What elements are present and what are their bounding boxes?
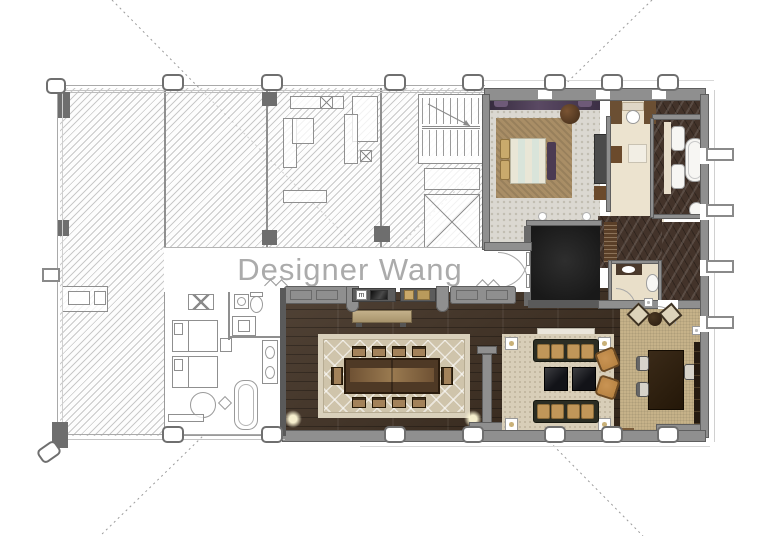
cad-closet-inner (94, 291, 106, 305)
facade-tab (706, 260, 734, 273)
left-wall-line (57, 86, 58, 438)
sofa-cushion (551, 404, 564, 419)
sofa-cushion (581, 404, 594, 419)
door-leaf (526, 252, 530, 266)
dining-chair (352, 346, 366, 357)
column-marker (46, 78, 66, 94)
bench (168, 414, 204, 422)
column-fill (262, 230, 277, 245)
round-side-table (626, 110, 640, 124)
dining-chair (352, 397, 366, 408)
sofa-cushion (537, 404, 550, 419)
shower-drain (238, 320, 250, 332)
facade-tab (706, 204, 734, 217)
kitchen-counter-right (344, 114, 358, 164)
toilet (250, 296, 263, 313)
column-marker (601, 74, 623, 91)
cad-bedroom-right-wall (280, 288, 286, 436)
bath-wall (228, 288, 230, 340)
cad-wall (266, 88, 268, 250)
appliance-icon (320, 96, 333, 109)
alcove-panel (610, 98, 622, 124)
dining-chair (372, 346, 386, 357)
vanity-counter (664, 122, 671, 194)
dining-chair (372, 397, 386, 408)
table-center-line (391, 360, 393, 392)
column-marker (657, 426, 679, 443)
coffee-table (572, 367, 596, 391)
minibar-icon: m (356, 290, 367, 300)
column-marker (544, 426, 566, 443)
column-fill (262, 92, 277, 106)
tv-cabinet (188, 294, 214, 310)
corridor-top-wall-line (164, 247, 530, 248)
pillar-stem (482, 354, 492, 426)
bath-wall (652, 114, 706, 120)
cad-wall (164, 88, 166, 250)
dressing-ottoman (628, 144, 647, 163)
glass-shelf-icon (370, 290, 388, 300)
dressing-bench (610, 146, 622, 163)
unrendered-zone-bottom-left (60, 250, 164, 436)
sideboard-leg (356, 323, 362, 327)
cad-closet-inner (68, 291, 90, 305)
sink-bowl (237, 297, 246, 306)
left-wall-line (62, 86, 63, 436)
wall-sconce-glow (284, 410, 302, 428)
facade-tab (42, 268, 60, 282)
sofa-cushion (551, 344, 564, 359)
column-fill (57, 92, 70, 118)
dining-chair (412, 346, 426, 357)
appliance-icon (360, 150, 372, 162)
column-marker (601, 426, 623, 443)
outer-boundary-line (360, 446, 710, 447)
column-marker (384, 426, 406, 443)
foyer-top-wall (526, 220, 602, 226)
bed-fold-line (188, 357, 189, 387)
cabinet-panel (456, 290, 478, 300)
vanity-basin (265, 346, 275, 359)
closet-hanging-rod (604, 222, 617, 262)
powder-wall (608, 260, 662, 264)
column-fill (374, 226, 390, 242)
corner-side-table (505, 337, 518, 350)
bed-pillow-left (500, 139, 510, 159)
desk-chair (636, 356, 649, 371)
window-slot (596, 90, 610, 99)
column-fill (57, 220, 69, 236)
dressing-divider-wall (606, 116, 611, 212)
bath-wall (650, 118, 654, 218)
cabinet-panel (316, 290, 338, 300)
desk (648, 350, 684, 410)
column-marker (261, 74, 283, 91)
bed-pillow (174, 323, 183, 335)
cabinet-panel (290, 290, 312, 300)
bath-wall (228, 336, 282, 338)
powder-basin (622, 266, 635, 273)
vanity-basin (265, 366, 275, 379)
column-marker (162, 426, 184, 443)
desk-chair (636, 382, 649, 397)
sofa-cushion (537, 344, 550, 359)
facade-tab (706, 316, 734, 329)
column-marker (384, 74, 406, 91)
column-marker (462, 74, 484, 91)
foyer-floor (530, 224, 600, 306)
column-marker (544, 74, 566, 91)
sofa-cushion (567, 344, 580, 359)
nightstand (220, 338, 232, 352)
bedroom-left-wall (482, 94, 490, 250)
bath-sink (671, 164, 685, 189)
dining-end-chair (441, 367, 453, 385)
bottom-wall-rendered (282, 430, 706, 442)
dining-chair (412, 397, 426, 408)
downlight-square (644, 298, 653, 307)
kitchen-island (283, 190, 327, 203)
bed-end-bench (547, 142, 556, 180)
bed-pillow (174, 359, 183, 371)
sofa-cushion (567, 404, 580, 419)
coffee-table (544, 367, 568, 391)
column-marker (657, 74, 679, 91)
round-ottoman (560, 104, 580, 124)
column-marker (462, 426, 484, 443)
bathtub-cad-inner (238, 384, 254, 426)
fridge (292, 118, 314, 144)
column-marker (261, 426, 283, 443)
lounge-round-table (648, 312, 662, 326)
toilet-tank (250, 292, 263, 297)
bed-fold-line (188, 321, 189, 351)
door-leaf (526, 274, 530, 288)
corbel (436, 286, 449, 312)
column-marker (162, 74, 184, 91)
pillar-cap (477, 346, 497, 354)
window-slot (538, 90, 552, 99)
kitchen-counter (290, 96, 344, 109)
stair-arrow-and-shaft-x (416, 92, 488, 252)
king-bed-duvet (510, 138, 546, 184)
study-top-wall (598, 300, 708, 309)
living-top-wall (528, 300, 602, 308)
sofa-cushion (581, 344, 594, 359)
dining-end-chair (331, 367, 343, 385)
bath-sink (671, 126, 685, 151)
bottle-tray-icon (404, 290, 414, 300)
cabinet-panel (486, 290, 508, 300)
bed-pillow-left (500, 160, 510, 180)
bottle-tray-icon (417, 290, 430, 300)
floor-plan-canvas: Designer Wang m (0, 0, 760, 536)
sideboard-leg (400, 323, 406, 327)
dining-chair (392, 397, 406, 408)
window-slot (652, 90, 666, 99)
outer-boundary-line (484, 80, 714, 81)
sideboard (352, 310, 412, 323)
facade-tab (706, 148, 734, 161)
dining-chair (392, 346, 406, 357)
bedroom-bottom-wall (484, 242, 532, 251)
